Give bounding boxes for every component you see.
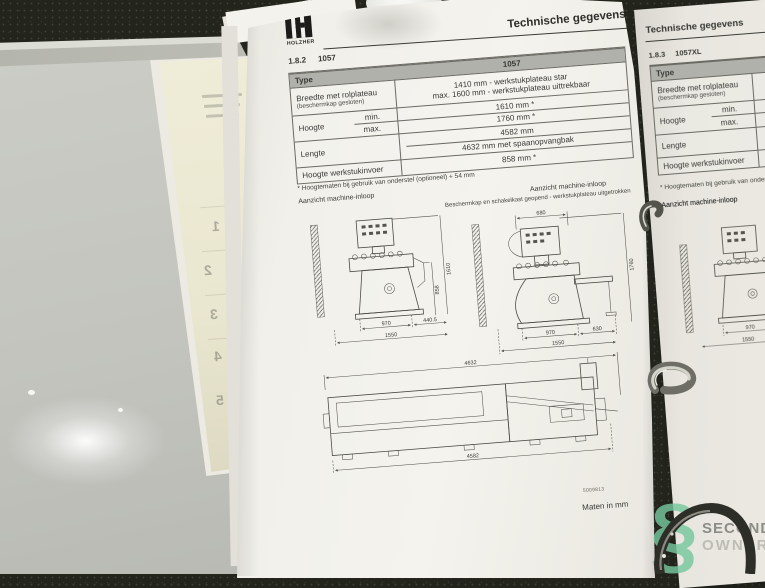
dim-label: 1550 xyxy=(742,337,755,344)
row-value xyxy=(752,79,765,86)
spec-table: Type 1057 Breedte met rolplateau (besche… xyxy=(288,46,634,184)
row-label: Hoogte xyxy=(654,113,708,126)
page-title: Technische gegevens xyxy=(438,8,626,36)
dim-width-side: 630 xyxy=(592,326,602,333)
dim-height-infeed: 858 xyxy=(434,285,441,295)
document-number: 5009813 xyxy=(583,486,605,494)
row-label: Hoogte xyxy=(293,120,351,133)
right-section-model: 1057XL xyxy=(675,47,702,58)
units-note: Maten in mm xyxy=(582,500,629,513)
watermark-line2: OWNER xyxy=(702,537,765,554)
watermark-line1: SECOND xyxy=(702,520,765,537)
section-heading: 1.8.21057 xyxy=(288,53,336,66)
dim-top: 4632 xyxy=(464,360,477,367)
dim-height-total: 1760 xyxy=(629,258,636,271)
cover-sparkle xyxy=(28,390,35,395)
right-page-drawing: 970 1550 xyxy=(673,217,765,394)
drawing-machine-full: 4632 4582 xyxy=(308,344,638,483)
dim-width-front: 970 xyxy=(546,330,556,337)
right-section-no: 1.8.3 xyxy=(648,50,665,60)
dim-width-total: 1550 xyxy=(552,340,565,347)
dim-label: 970 xyxy=(745,325,755,332)
dim-height-total: 1610 xyxy=(446,263,453,276)
tab-number: 1 xyxy=(211,218,220,235)
view-caption-left: Aanzicht machine-inloop xyxy=(298,193,375,206)
table-header-value xyxy=(756,59,765,66)
row-label: Hoogte werkstukinvoer xyxy=(658,154,763,171)
section-no: 1.8.2 xyxy=(288,55,306,65)
drawing-machine-open: 680 1760 970 630 xyxy=(463,200,652,362)
row-label: Lengte xyxy=(295,142,404,160)
cover-sparkle xyxy=(118,408,123,412)
dim-top: 680 xyxy=(536,210,546,217)
row-label: Lengte xyxy=(656,134,761,151)
right-spec-table: Type Breedte met rolplateau (beschermkap… xyxy=(649,50,765,176)
right-section-heading: 1.8.31057XL xyxy=(648,47,702,60)
dim-width-total: 1550 xyxy=(385,332,398,339)
tab-number: 4 xyxy=(213,348,222,365)
right-page-title: Technische gegevens xyxy=(645,17,744,36)
drawing-machine-inloop: 1610 858 970 440.5 1550 xyxy=(300,210,469,364)
holzher-logo-text: HOLZHER xyxy=(287,39,317,47)
tab-number: 3 xyxy=(209,306,218,323)
row-value xyxy=(760,113,765,120)
tab-number: 2 xyxy=(203,262,212,279)
cover-reflection xyxy=(6,396,166,486)
tab-number: 5 xyxy=(215,392,224,409)
main-page-content: HOLZHER Technische gegevens 1.8.21057 Ty… xyxy=(246,0,691,566)
section-model: 1057 xyxy=(318,53,336,63)
row-value xyxy=(761,131,765,138)
row-value xyxy=(759,100,765,107)
dim-bottom: 4582 xyxy=(467,453,480,460)
right-view-caption: Aanzicht machine-inloop xyxy=(661,196,738,209)
watermark-symbol: § xyxy=(650,492,698,578)
main-manual-page: HOLZHER Technische gegevens 1.8.21057 Ty… xyxy=(228,0,662,578)
dim-width-front: 970 xyxy=(381,321,391,328)
dim-width-side: 440.5 xyxy=(423,317,437,324)
